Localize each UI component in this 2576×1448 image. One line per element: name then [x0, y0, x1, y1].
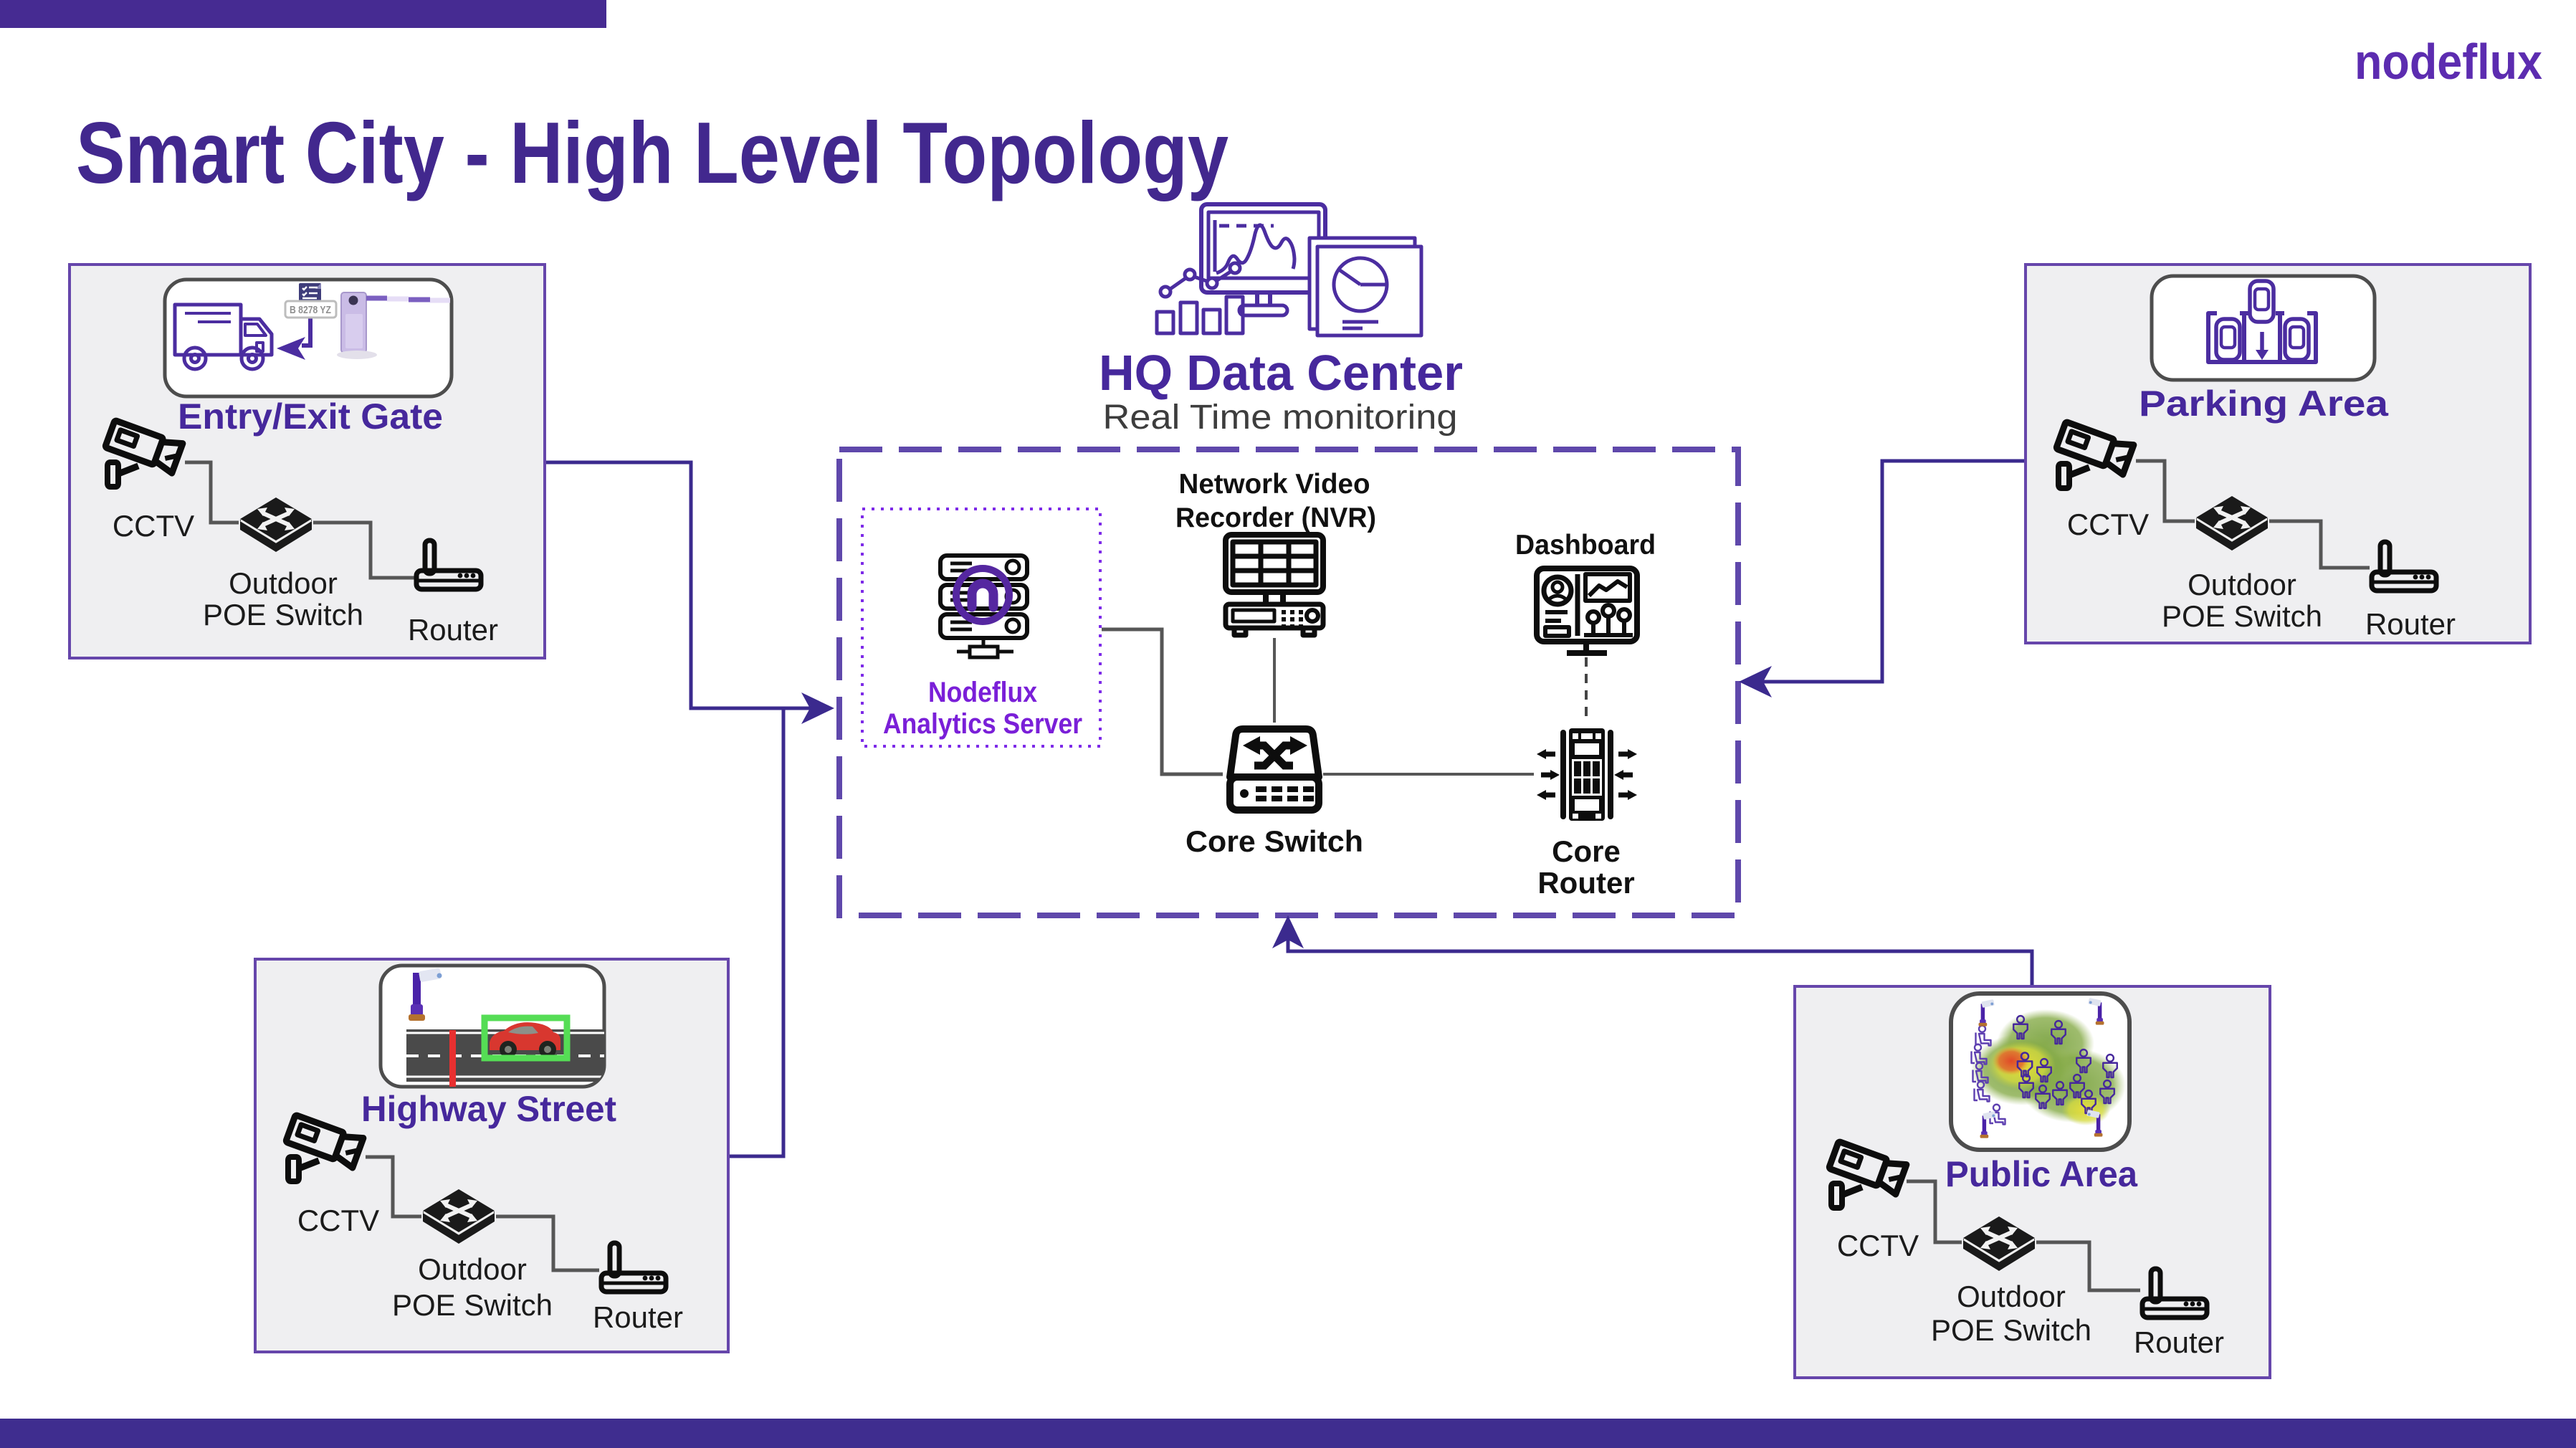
svg-text:Entry/Exit Gate: Entry/Exit Gate: [178, 396, 443, 437]
svg-text:Router: Router: [593, 1300, 683, 1334]
svg-text:Outdoor: Outdoor: [418, 1252, 527, 1286]
svg-text:Router: Router: [2134, 1325, 2224, 1359]
svg-text:CCTV: CCTV: [2067, 508, 2149, 541]
svg-text:Public Area: Public Area: [1945, 1154, 2138, 1194]
svg-text:POE Switch: POE Switch: [203, 598, 363, 632]
svg-text:Real Time monitoring: Real Time monitoring: [1103, 399, 1458, 437]
svg-text:Network Video: Network Video: [1179, 469, 1370, 500]
svg-text:POE Switch: POE Switch: [392, 1288, 553, 1322]
svg-text:Analytics Server: Analytics Server: [883, 708, 1082, 740]
svg-text:Recorder (NVR): Recorder (NVR): [1175, 502, 1376, 533]
svg-text:CCTV: CCTV: [297, 1204, 379, 1237]
svg-text:Outdoor: Outdoor: [229, 566, 338, 600]
svg-text:CCTV: CCTV: [1837, 1229, 1919, 1262]
svg-text:Core: Core: [1552, 834, 1621, 868]
svg-text:nodeflux: nodeflux: [2355, 34, 2542, 90]
svg-text:Highway Street: Highway Street: [361, 1089, 616, 1129]
svg-text:Outdoor: Outdoor: [2188, 568, 2296, 601]
svg-text:HQ Data Center: HQ Data Center: [1099, 345, 1463, 401]
svg-text:POE Switch: POE Switch: [2162, 599, 2322, 633]
svg-text:Router: Router: [1537, 866, 1634, 900]
svg-text:Smart City - High Level Topolo: Smart City - High Level Topology: [76, 104, 1229, 201]
svg-text:Nodeflux: Nodeflux: [928, 677, 1037, 708]
svg-text:Router: Router: [2365, 607, 2456, 641]
svg-text:Parking Area: Parking Area: [2139, 384, 2389, 424]
svg-text:Core Switch: Core Switch: [1186, 824, 1363, 858]
svg-text:B 8278 YZ: B 8278 YZ: [290, 304, 331, 316]
svg-text:Outdoor: Outdoor: [1957, 1280, 2066, 1313]
svg-text:CCTV: CCTV: [113, 509, 194, 543]
svg-text:POE Switch: POE Switch: [1931, 1313, 2091, 1347]
svg-text:Router: Router: [408, 613, 498, 647]
svg-text:Dashboard: Dashboard: [1515, 530, 1656, 561]
